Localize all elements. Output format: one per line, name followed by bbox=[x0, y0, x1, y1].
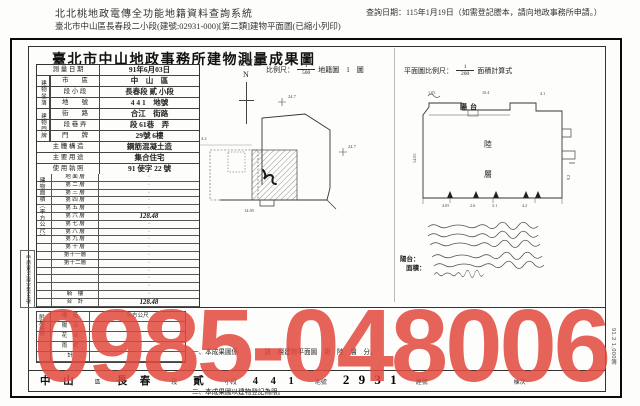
plan-dim: 14.05 bbox=[412, 154, 417, 163]
row-value: 鋼筋混凝土造 bbox=[100, 142, 199, 152]
floor-row: 第 四 層 · bbox=[37, 197, 199, 205]
floor-value: · bbox=[99, 268, 199, 275]
floor-name: 第十一層 bbox=[51, 252, 99, 259]
handwritten-calc-line bbox=[434, 261, 544, 268]
plan-dim: 3.1 bbox=[492, 203, 497, 208]
floor-name: 地 面 層 bbox=[51, 174, 99, 181]
row-label: 門 牌 bbox=[50, 131, 100, 141]
table-row: 主 體 構 造 鋼筋混凝土造 bbox=[37, 142, 199, 153]
watermark-phone-number: 0985-048006 bbox=[14, 294, 628, 397]
floor-value: · bbox=[99, 236, 199, 243]
handwritten-calc-line bbox=[428, 222, 538, 229]
row-value: 29號 6樓 bbox=[100, 131, 199, 141]
calc-balcony-label: 陽台： bbox=[400, 254, 420, 263]
row-value: 91 使字 22 號 bbox=[100, 164, 199, 174]
row-label: 段 巷 弄 bbox=[50, 120, 100, 130]
table-row: 街 路 合江 街路 bbox=[37, 109, 199, 120]
plan-dim: 4.05 bbox=[442, 203, 449, 208]
balcony-label: 陽台 bbox=[460, 102, 480, 111]
row-label: 段 小 段 bbox=[50, 87, 100, 97]
plan-dim: 1.05 bbox=[428, 90, 435, 95]
handwritten-calc-line bbox=[430, 240, 540, 247]
row-label: 主 要 用 途 bbox=[37, 153, 100, 163]
floor-name: 第 七 層 bbox=[51, 221, 99, 228]
floor-name: 第 八 層 bbox=[51, 229, 99, 236]
floor-row: 第 十 層 · bbox=[37, 244, 199, 252]
floor-name: 第 六 層 bbox=[51, 213, 99, 220]
table-row: 測 量 日 期 91年6月03日 bbox=[37, 65, 199, 76]
row-label: 市 區 bbox=[50, 76, 100, 86]
row-value: 中 山 區 bbox=[100, 76, 199, 86]
floor-value: · bbox=[99, 205, 199, 212]
floor-plan-drawing: 陽台 陸 層 1.05 10.4 4.1 4.05 2.6 3.1 4.2 14… bbox=[398, 85, 598, 285]
document-page: 北北桃地政電傳全功能地籍資料查詢系統 查詢日期：115年1月19日（如需登記謄本… bbox=[0, 0, 640, 406]
plan-dim: 4.2 bbox=[522, 203, 527, 208]
site-group-label: 建物坐落 bbox=[37, 76, 50, 109]
floor-value: 128.48 bbox=[99, 213, 199, 220]
handwritten-calc-line bbox=[428, 231, 538, 238]
floor-row: 第十一層 · bbox=[37, 252, 199, 260]
query-date: 查詢日期：115年1月19日（如需登記謄本，請向地政事務所申請。） bbox=[366, 7, 602, 18]
row-label: 地 號 bbox=[50, 98, 100, 108]
row-value: 段 61巷 弄 bbox=[100, 120, 199, 130]
handwritten-calc-line bbox=[432, 252, 542, 259]
row-value: 91年6月03日 bbox=[100, 65, 199, 75]
row-label: 主 體 構 造 bbox=[37, 142, 100, 152]
floor-name: 第 十 層 bbox=[51, 244, 99, 251]
floor-row: 第 九 層 · bbox=[37, 236, 199, 244]
map-scale-suffix: 地籍圖 1 圖 bbox=[318, 65, 364, 75]
floor-value: · bbox=[99, 260, 199, 267]
building-info-table: 建物坐落 建物門牌 測 量 日 期 91年6月03日 市 區 中 山 區 段 小… bbox=[36, 64, 200, 175]
map-tick: 24.7 bbox=[348, 144, 357, 149]
floor-value: · bbox=[99, 221, 199, 228]
map-scale-prefix: 比例尺： bbox=[266, 65, 294, 75]
floor-row: 第 三 層 · bbox=[37, 190, 199, 198]
floor-char-2: 層 bbox=[484, 170, 492, 179]
row-value: 4 4 1 地號 bbox=[100, 98, 199, 108]
plan-scale-header: 平面圖比例尺： 1 200 面積計算式 bbox=[404, 64, 512, 78]
floor-char-1: 陸 bbox=[484, 139, 492, 149]
floor-value: · bbox=[99, 190, 199, 197]
location-map-label: 位置圖 bbox=[238, 58, 262, 68]
floor-name: 第 二 層 bbox=[51, 182, 99, 189]
door-group-label: 建物門牌 bbox=[37, 109, 50, 142]
plan-scale-denominator: 200 bbox=[456, 70, 474, 77]
map-tick: 24.7 bbox=[288, 94, 297, 99]
floor-row: 第 二 層 · bbox=[37, 182, 199, 190]
subject-parcel-hatch bbox=[252, 150, 297, 200]
map-scale-fraction: 1 500 bbox=[297, 63, 315, 77]
plan-dim: 4.1 bbox=[540, 91, 545, 96]
map-tick: 4.2 bbox=[201, 136, 207, 141]
map-tick: 14.05 bbox=[244, 208, 255, 213]
row-label: 使 用 執 照 bbox=[37, 164, 100, 174]
location-map-drawing: 24.7 4.2 14.05 24.7 bbox=[200, 88, 395, 303]
floor-row: 第 六 層 128.48 bbox=[37, 213, 199, 221]
floor-value: · bbox=[99, 182, 199, 189]
plan-dim: 10.4 bbox=[482, 90, 490, 95]
floor-name: 第 三 層 bbox=[51, 190, 99, 197]
floor-value: · bbox=[99, 229, 199, 236]
floor-value: · bbox=[99, 174, 199, 181]
floor-name: 第 九 層 bbox=[51, 236, 99, 243]
floor-row: 第十二層 · bbox=[37, 260, 199, 268]
floor-value: · bbox=[99, 244, 199, 251]
floor-name: 第十二層 bbox=[51, 260, 99, 267]
floor-row: · bbox=[37, 275, 199, 283]
floor-name bbox=[51, 268, 99, 275]
table-row: 主 要 用 途 集合住宅 bbox=[37, 153, 199, 164]
plan-dim: 2.6 bbox=[470, 203, 475, 208]
calc-area-label: 面積： bbox=[406, 263, 426, 272]
row-value: 合江 街路 bbox=[100, 109, 199, 119]
print-subtitle: 臺北市中山區長春段二小段(建號:02931-000)[第二類]建物平面圖(已縮小… bbox=[55, 20, 341, 32]
table-row: 段 巷 弄 段 61巷 弄 bbox=[37, 120, 199, 131]
row-value: 長春段 貳 小段 bbox=[100, 87, 199, 97]
system-title: 北北桃地政電傳全功能地籍資料查詢系統 bbox=[55, 5, 253, 20]
floor-value: · bbox=[99, 252, 199, 259]
row-value: 集合住宅 bbox=[100, 153, 199, 163]
plan-scale-prefix: 平面圖比例尺： bbox=[404, 66, 453, 76]
floor-name: 第 五 層 bbox=[51, 205, 99, 212]
plan-dim: 9.2 bbox=[566, 175, 571, 180]
map-scale: 比例尺： 1 500 地籍圖 1 圖 bbox=[266, 63, 364, 77]
row-label: 街 路 bbox=[50, 109, 100, 119]
floor-row: · bbox=[37, 268, 199, 276]
floor-area-side-label: 建物面積（平方公尺） bbox=[37, 177, 46, 305]
floor-name bbox=[51, 275, 99, 282]
table-row: 市 區 中 山 區 bbox=[37, 76, 199, 87]
north-indicator: N bbox=[243, 70, 249, 79]
row-label: 測 量 日 期 bbox=[37, 65, 100, 75]
floor-name: 第 四 層 bbox=[51, 197, 99, 204]
floor-row: 第 五 層 · bbox=[37, 205, 199, 213]
floor-row: 第 七 層 · bbox=[37, 221, 199, 229]
plan-scale-fraction: 1 200 bbox=[456, 64, 474, 78]
table-row: 地 號 4 4 1 地號 bbox=[37, 98, 199, 109]
floor-row: 第 八 層 · bbox=[37, 229, 199, 237]
plan-scale-suffix: 面積計算式 bbox=[477, 66, 512, 76]
floor-value: · bbox=[99, 275, 199, 282]
map-scale-denominator: 500 bbox=[297, 69, 315, 76]
table-row: 段 小 段 長春段 貳 小段 bbox=[37, 87, 199, 98]
handwritten-calc-line bbox=[434, 270, 484, 277]
floor-value: · bbox=[99, 197, 199, 204]
floor-row: 地 面 層 · bbox=[37, 174, 199, 182]
table-row: 門 牌 29號 6樓 bbox=[37, 131, 199, 142]
